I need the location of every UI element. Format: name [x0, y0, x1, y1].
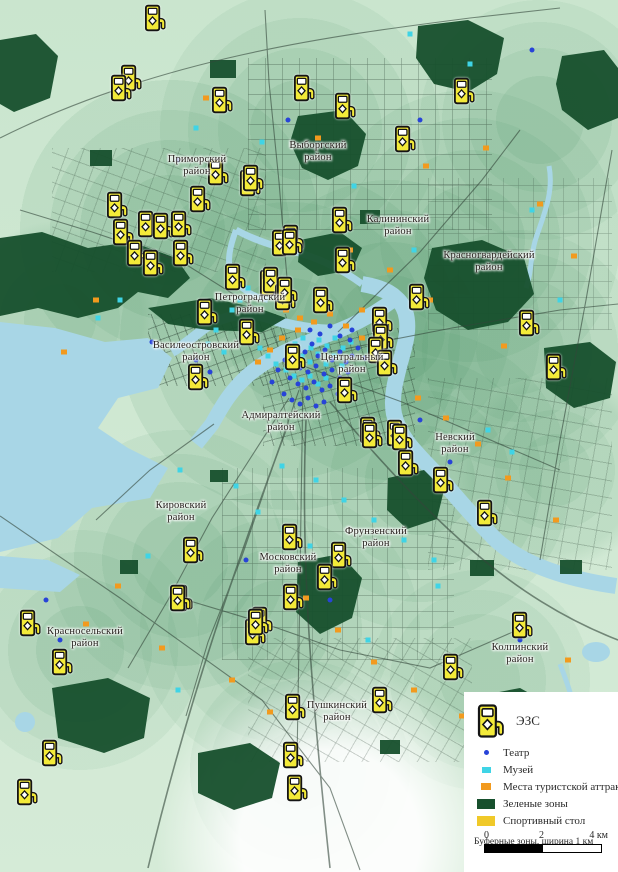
- ev-station-marker: [281, 522, 303, 552]
- scale-tick: 2: [539, 830, 544, 841]
- ev-station-marker: [172, 238, 194, 268]
- theater-marker: [306, 370, 311, 375]
- museum-marker: [260, 140, 265, 145]
- museum-marker: [372, 518, 377, 523]
- museum-marker: [510, 450, 515, 455]
- theater-marker: [308, 328, 313, 333]
- attraction-marker: [415, 396, 421, 401]
- scale-bar: 0 2 4 км: [484, 830, 604, 853]
- attraction-marker: [501, 344, 507, 349]
- museum-marker: [530, 208, 535, 213]
- theater-marker: [314, 404, 319, 409]
- museum-marker: [432, 558, 437, 563]
- legend-item-label: Театр: [503, 747, 529, 759]
- attraction-marker: [553, 518, 559, 523]
- ev-station-marker: [316, 562, 338, 592]
- ev-station-marker: [276, 275, 298, 305]
- ev-station-marker: [19, 608, 41, 638]
- theater-marker: [350, 328, 355, 333]
- ev-station-marker: [281, 227, 303, 257]
- theater-marker: [304, 386, 309, 391]
- ev-station-marker: [397, 448, 419, 478]
- ev-station-marker: [211, 85, 233, 115]
- attraction-marker: [115, 584, 121, 589]
- ev-station-marker: [331, 205, 353, 235]
- attraction-marker: [83, 622, 89, 627]
- theater-marker: [356, 346, 361, 351]
- museum-marker: [308, 360, 313, 365]
- museum-icon: [477, 767, 495, 773]
- theater-marker: [310, 342, 315, 347]
- district-label: Выборгский район: [289, 140, 346, 164]
- scale-tick: 4 км: [589, 830, 608, 841]
- museum-marker: [222, 350, 227, 355]
- ev-station-marker: [247, 607, 269, 637]
- museum-marker: [146, 554, 151, 559]
- museum-marker: [558, 298, 563, 303]
- theater-marker: [344, 360, 349, 365]
- theater-marker: [330, 358, 335, 363]
- theater-marker: [418, 418, 423, 423]
- ev-station-marker: [284, 342, 306, 372]
- ev-station-marker: [545, 352, 567, 382]
- museum-marker: [317, 338, 322, 343]
- attraction-marker: [255, 360, 261, 365]
- district-label: Невский район: [435, 432, 475, 456]
- theater-marker: [418, 118, 423, 123]
- ev-station-marker: [312, 285, 334, 315]
- theater-marker: [288, 376, 293, 381]
- museum-marker: [300, 378, 305, 383]
- ev-station-marker: [142, 248, 164, 278]
- ev-station-marker: [187, 362, 209, 392]
- ev-station-marker: [238, 317, 260, 347]
- attraction-marker: [359, 308, 365, 313]
- attraction-marker: [315, 136, 321, 141]
- attraction-marker: [297, 316, 303, 321]
- theater-marker: [328, 598, 333, 603]
- theater-marker: [176, 158, 181, 163]
- museum-marker: [234, 484, 239, 489]
- ev-station-marker: [476, 498, 498, 528]
- ev-station-marker: [224, 262, 246, 292]
- ev-station-marker: [376, 348, 398, 378]
- district-label: Красногвардейский район: [443, 250, 534, 274]
- ev-station-marker: [336, 375, 358, 405]
- legend: ЭЗС Театр Музей Места туристской аттракц…: [464, 692, 618, 872]
- museum-marker: [412, 248, 417, 253]
- attraction-icon: [477, 783, 495, 790]
- museum-marker: [96, 316, 101, 321]
- ev-station-marker: [170, 209, 192, 239]
- theater-marker: [350, 354, 355, 359]
- museum-marker: [256, 510, 261, 515]
- ev-station-marker: [284, 692, 306, 722]
- theater-marker: [330, 368, 335, 373]
- museum-marker: [468, 62, 473, 67]
- ev-station-marker: [361, 420, 383, 450]
- ev-station-marker: [334, 91, 356, 121]
- ev-station-marker: [394, 124, 416, 154]
- theater-marker: [328, 324, 333, 329]
- museum-marker: [314, 478, 319, 483]
- museum-marker: [342, 498, 347, 503]
- attraction-marker: [159, 646, 165, 651]
- museum-marker: [176, 688, 181, 693]
- theater-marker: [338, 350, 343, 355]
- attraction-marker: [229, 678, 235, 683]
- ev-station-marker: [16, 777, 38, 807]
- theater-marker: [348, 338, 353, 343]
- attraction-marker: [483, 146, 489, 151]
- theater-marker: [298, 402, 303, 407]
- attraction-marker: [335, 628, 341, 633]
- ev-station-marker: [182, 535, 204, 565]
- museum-marker: [230, 308, 235, 313]
- theater-marker: [306, 396, 311, 401]
- museum-marker: [308, 544, 313, 549]
- museum-marker: [214, 328, 219, 333]
- theater-marker: [316, 354, 321, 359]
- museum-marker: [301, 336, 306, 341]
- district-label: Колпинский район: [492, 642, 549, 666]
- district-label: Адмиралтейский район: [241, 410, 320, 434]
- museum-marker: [408, 32, 413, 37]
- ev-station-marker: [242, 163, 264, 193]
- ev-station-marker: [432, 465, 454, 495]
- scale-tick: 0: [484, 830, 489, 841]
- theater-marker: [318, 332, 323, 337]
- theater-marker: [320, 388, 325, 393]
- legend-item-label: Зеленые зоны: [503, 798, 568, 810]
- district-label: Московский район: [260, 552, 317, 576]
- ev-station-marker: [442, 652, 464, 682]
- theater-marker: [296, 382, 301, 387]
- ev-station-marker: [511, 610, 533, 640]
- legend-item-label: Музей: [503, 764, 533, 776]
- ev-station-marker: [110, 73, 132, 103]
- theater-marker: [150, 340, 155, 345]
- ev-station-marker: [189, 184, 211, 214]
- ev-station-marker: [41, 738, 63, 768]
- museum-marker: [194, 126, 199, 131]
- district-label: Пушкинский район: [307, 700, 367, 724]
- attraction-marker: [411, 688, 417, 693]
- museum-marker: [238, 298, 243, 303]
- ev-station-marker: [453, 76, 475, 106]
- museum-marker: [340, 364, 345, 369]
- ev-station-marker: [371, 685, 393, 715]
- theater-marker: [270, 380, 275, 385]
- museum-marker: [486, 428, 491, 433]
- sport-swatch: [477, 816, 495, 826]
- museum-marker: [118, 298, 123, 303]
- attraction-marker: [371, 660, 377, 665]
- museum-marker: [206, 342, 211, 347]
- map-canvas: Приморский районВыборгский районКалининс…: [0, 0, 618, 872]
- attraction-marker: [423, 164, 429, 169]
- theater-marker: [276, 368, 281, 373]
- theater-marker: [312, 380, 317, 385]
- ev-station-marker: [196, 297, 218, 327]
- museum-marker: [324, 362, 329, 367]
- attraction-marker: [267, 710, 273, 715]
- museum-marker: [266, 354, 271, 359]
- legend-ev-label: ЭЗС: [516, 713, 540, 729]
- ev-station-marker: [282, 740, 304, 770]
- ev-station-marker: [293, 73, 315, 103]
- attraction-marker: [343, 324, 349, 329]
- attraction-marker: [387, 268, 393, 273]
- attraction-marker: [311, 320, 317, 325]
- theater-marker: [530, 48, 535, 53]
- attraction-marker: [359, 336, 365, 341]
- theater-icon: [477, 750, 495, 755]
- attraction-marker: [443, 416, 449, 421]
- museum-marker: [178, 468, 183, 473]
- theater-marker: [338, 334, 343, 339]
- theater-marker: [323, 348, 328, 353]
- ev-station-marker: [207, 157, 229, 187]
- theater-marker: [58, 638, 63, 643]
- museum-marker: [352, 184, 357, 189]
- museum-marker: [274, 362, 279, 367]
- museum-marker: [246, 286, 251, 291]
- ev-station-marker: [169, 583, 191, 613]
- attraction-marker: [505, 476, 511, 481]
- attraction-marker: [279, 336, 285, 341]
- attraction-marker: [203, 96, 209, 101]
- attraction-marker: [537, 202, 543, 207]
- ev-station-marker: [286, 773, 308, 803]
- theater-marker: [346, 370, 351, 375]
- theater-marker: [448, 460, 453, 465]
- theater-marker: [44, 598, 49, 603]
- ev-station-marker: [518, 308, 540, 338]
- ev-station-marker: [106, 190, 128, 220]
- attraction-marker: [475, 442, 481, 447]
- legend-item-label: Спортивный стол: [503, 815, 585, 827]
- legend-item-label: Места туристской аттракции: [503, 781, 618, 793]
- attraction-marker: [93, 298, 99, 303]
- museum-marker: [280, 464, 285, 469]
- museum-marker: [436, 584, 441, 589]
- theater-marker: [322, 400, 327, 405]
- attraction-marker: [267, 348, 273, 353]
- theater-marker: [282, 392, 287, 397]
- district-label: Фрунзенский район: [345, 526, 407, 550]
- ev-station-marker: [144, 3, 166, 33]
- ev-station-icon: [477, 702, 504, 740]
- ev-station-marker: [334, 245, 356, 275]
- district-label: Калининский район: [367, 214, 430, 238]
- district-label: Кировский район: [156, 500, 207, 524]
- theater-marker: [328, 384, 333, 389]
- attraction-marker: [571, 254, 577, 259]
- attraction-marker: [565, 658, 571, 663]
- ev-station-marker: [408, 282, 430, 312]
- theater-marker: [286, 118, 291, 123]
- theater-marker: [322, 372, 327, 377]
- ev-station-marker: [282, 582, 304, 612]
- theater-marker: [314, 364, 319, 369]
- museum-marker: [402, 538, 407, 543]
- museum-marker: [366, 638, 371, 643]
- theater-marker: [290, 398, 295, 403]
- attraction-marker: [295, 328, 301, 333]
- ev-station-marker: [51, 647, 73, 677]
- attraction-marker: [61, 350, 67, 355]
- green-zones-swatch: [477, 799, 495, 809]
- theater-marker: [244, 558, 249, 563]
